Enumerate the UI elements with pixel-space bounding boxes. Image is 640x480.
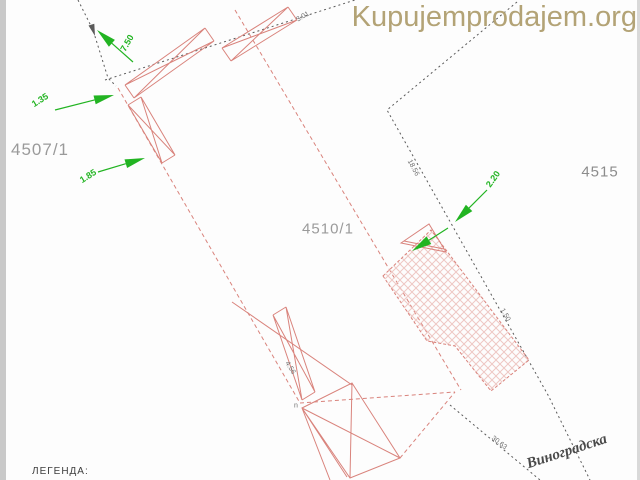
cadastral-map-screenshot: Kupujemprodajem.org 4507/1 4510/1 4515 7… [0,0,640,480]
parcel-label-4515: 4515 [581,164,618,181]
survey-direction-arrow [89,24,96,36]
hatched-building [383,230,529,391]
parcel-4510-outline [118,7,461,480]
watermark-text: Kupujemprodajem.org [352,1,637,34]
dimension-arrows [55,30,487,251]
dimension-arrowhead [125,158,146,168]
parcel-label-4507-1: 4507/1 [11,140,69,160]
survey-boundary-lines [78,0,590,480]
vertex-label: n [294,403,298,410]
left-border-strip [0,0,6,480]
survey-drawing [0,0,640,480]
legend-title: ЛЕГЕНДА: [32,466,89,477]
parcel-label-4510-1: 4510/1 [302,221,354,238]
dimension-arrowhead [94,95,115,104]
